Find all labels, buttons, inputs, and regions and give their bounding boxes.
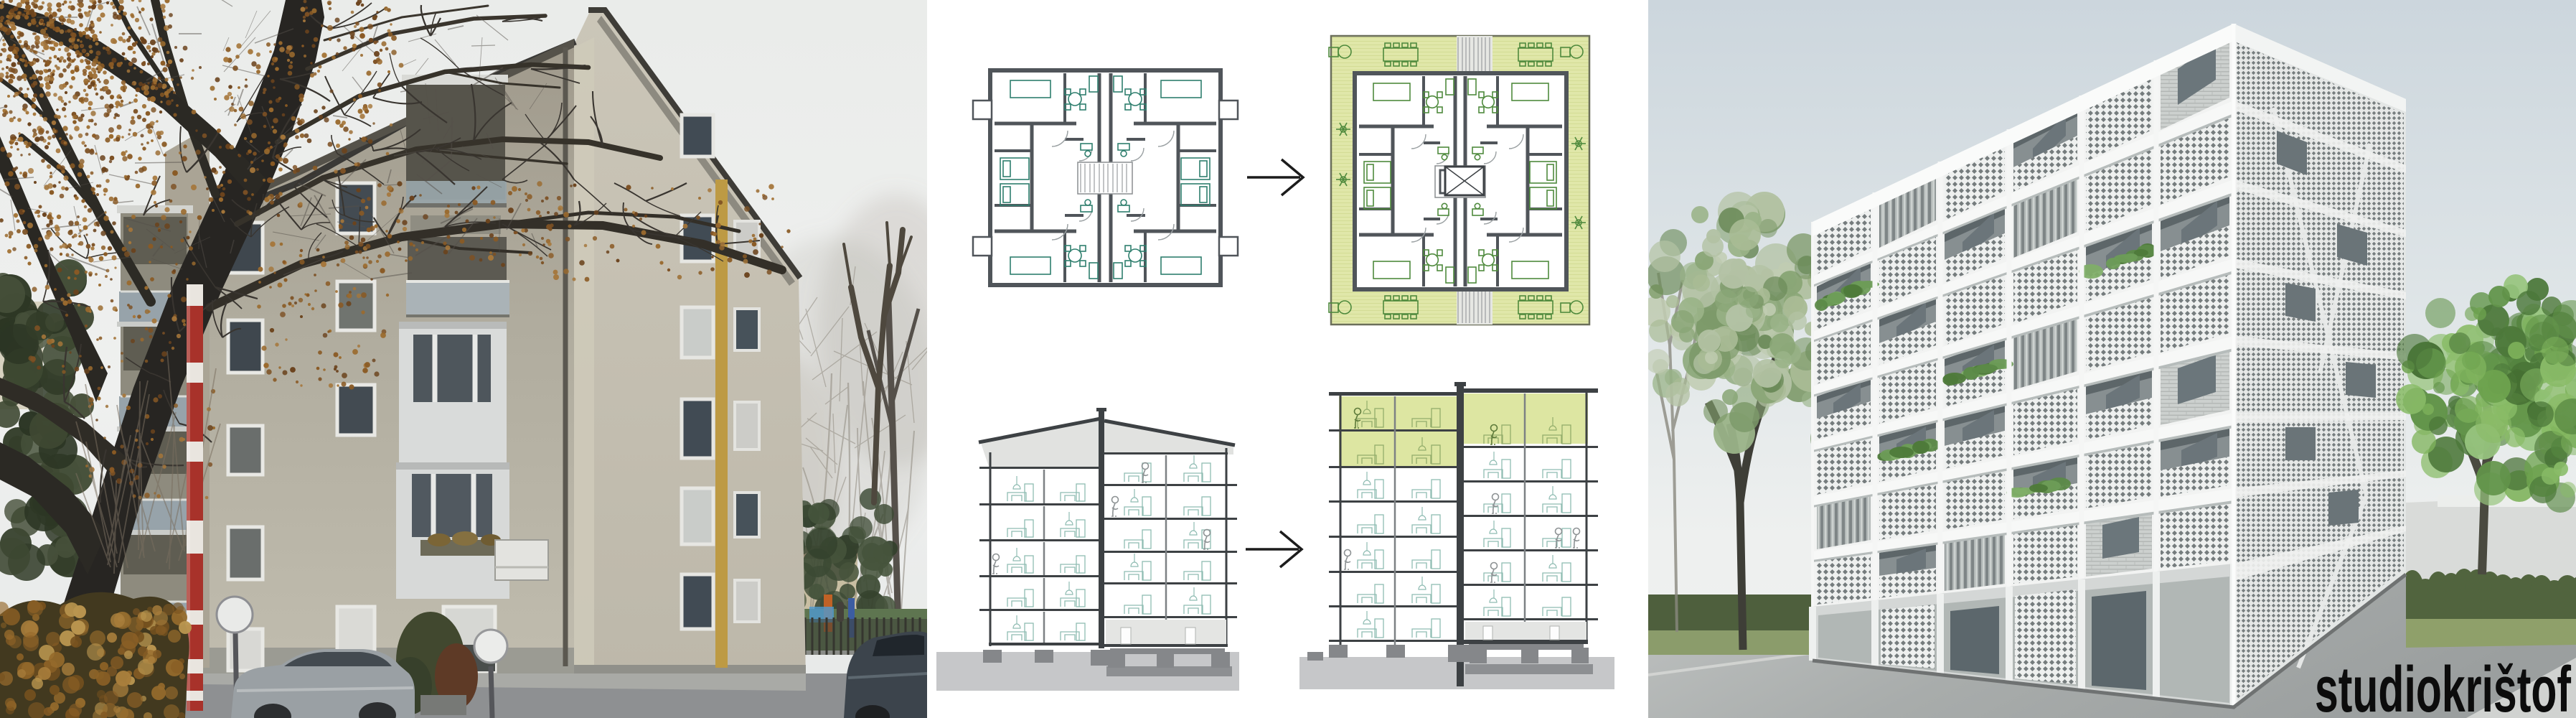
svg-text:studiokrištof: studiokrištof: [2315, 654, 2572, 718]
